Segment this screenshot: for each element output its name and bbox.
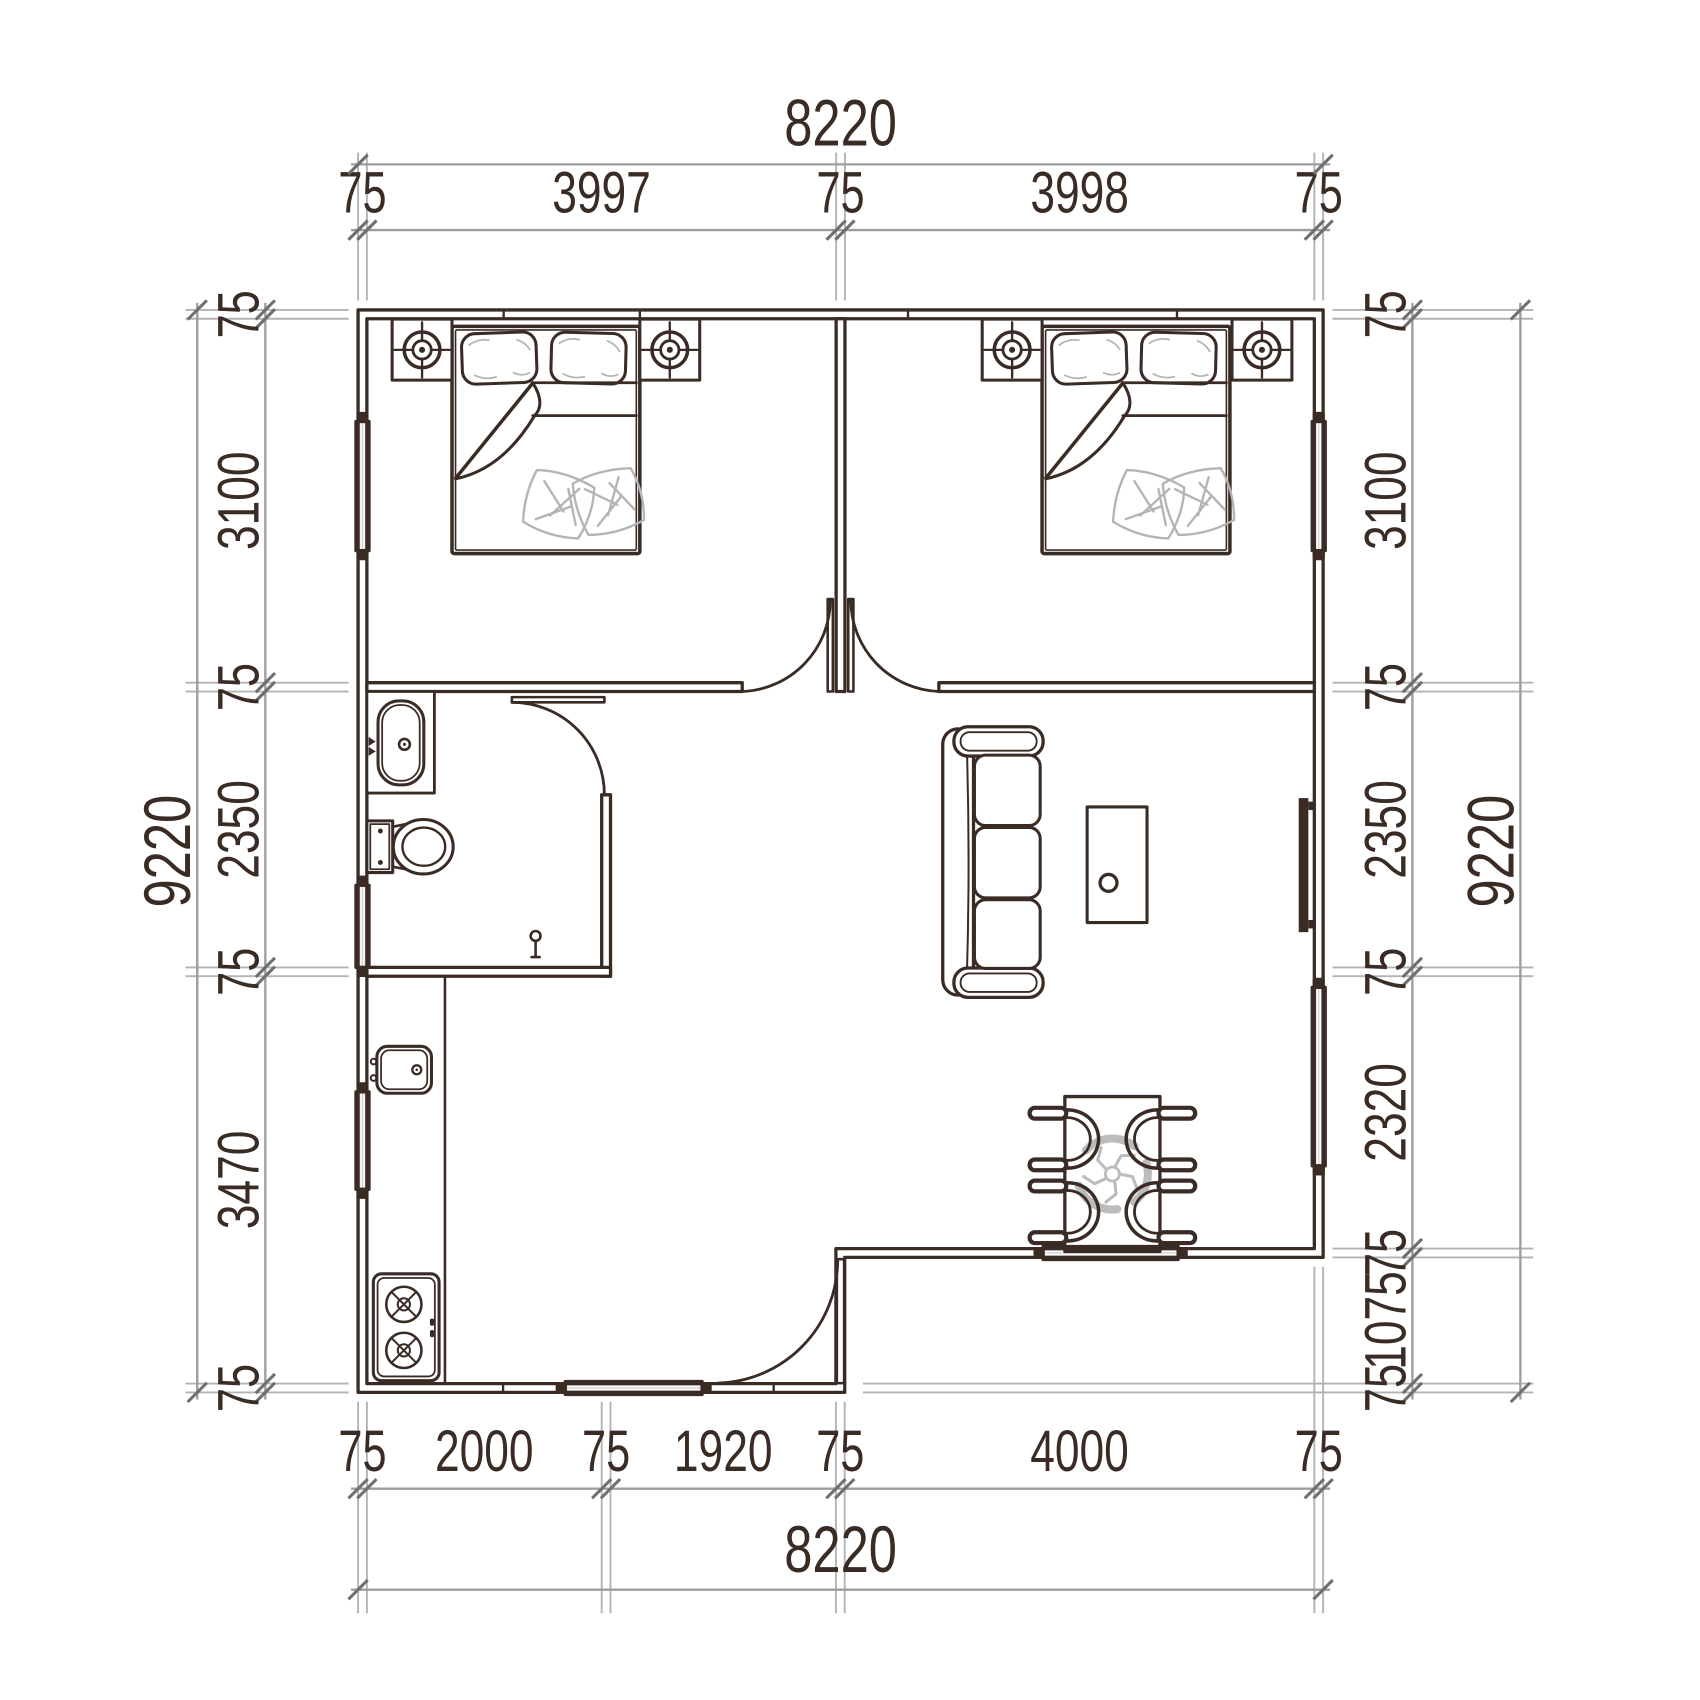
- bed-2: [1042, 326, 1238, 553]
- dim-top-0: 75: [338, 160, 386, 225]
- dim-right-3: 2350: [1353, 780, 1418, 879]
- window-bathroom-left: [356, 877, 369, 975]
- floor-plan-canvas: 7539977539987582207520007519207540007582…: [0, 0, 1700, 1700]
- bed-1: [452, 326, 648, 553]
- toilet-icon: [367, 819, 453, 873]
- dim-left-2: 75: [206, 663, 271, 711]
- dim-left-5: 3470: [206, 1131, 271, 1230]
- dim-bottom-2: 75: [582, 1419, 630, 1484]
- dim-right-8: 75: [1353, 1364, 1418, 1412]
- dim-right-5: 2320: [1353, 1063, 1418, 1162]
- window-dining-right: [1312, 979, 1325, 1173]
- dim-left-0: 75: [206, 290, 271, 338]
- floor-plan-page: 7539977539987582207520007519207540007582…: [0, 0, 1700, 1700]
- dim-right-2: 75: [1353, 663, 1418, 711]
- nightstand-2r: [1232, 319, 1292, 380]
- dim-right-0: 75: [1353, 290, 1418, 338]
- wall-bedroom-divider: [836, 319, 845, 692]
- dim-left-1: 3100: [206, 451, 271, 550]
- window-bedroom2-right: [1312, 413, 1325, 558]
- sofa-icon: [943, 727, 1043, 998]
- coffee-table-icon: [1087, 807, 1147, 923]
- dim-top-1: 3997: [552, 160, 651, 225]
- dim-bottom-0: 75: [338, 1419, 386, 1484]
- dim-top-3: 3998: [1030, 160, 1129, 225]
- wall-bedroom2-front: [939, 683, 1314, 692]
- nightstand-2l: [982, 319, 1042, 380]
- dim-left-6: 75: [206, 1364, 271, 1412]
- window-bedroom1-left: [356, 413, 369, 558]
- nightstand-1l: [392, 319, 452, 380]
- window-kitchen-bottom: [557, 1381, 710, 1394]
- dim-bottom-overall: 8220: [784, 1512, 897, 1586]
- dim-top-2: 75: [816, 160, 864, 225]
- kitchen-sink-icon: [371, 1046, 432, 1093]
- stove-knob: [430, 1330, 434, 1337]
- dim-bottom-3: 1920: [674, 1419, 773, 1484]
- wall-bathroom-bottom: [367, 967, 611, 976]
- dim-top-overall: 8220: [784, 86, 897, 160]
- dim-right-7: 1075: [1353, 1271, 1418, 1370]
- dim-right-overall: 9220: [1453, 795, 1527, 908]
- gas-stove-icon: [373, 1274, 439, 1381]
- dim-left-3: 2350: [206, 780, 271, 879]
- washbasin-icon: [367, 692, 435, 794]
- dim-left-4: 75: [206, 948, 271, 996]
- dim-right-1: 3100: [1353, 451, 1418, 550]
- stove-knob: [430, 1318, 434, 1325]
- dim-right-6: 75: [1353, 1229, 1418, 1277]
- dim-bottom-5: 4000: [1030, 1419, 1129, 1484]
- dim-bottom-1: 2000: [435, 1419, 534, 1484]
- dim-left-overall: 9220: [130, 795, 204, 908]
- dim-bottom-4: 75: [816, 1419, 864, 1484]
- dim-bottom-6: 75: [1295, 1419, 1343, 1484]
- nightstand-1r: [640, 319, 700, 380]
- dim-right-4: 75: [1353, 948, 1418, 996]
- wall-bathroom-right: [602, 795, 611, 976]
